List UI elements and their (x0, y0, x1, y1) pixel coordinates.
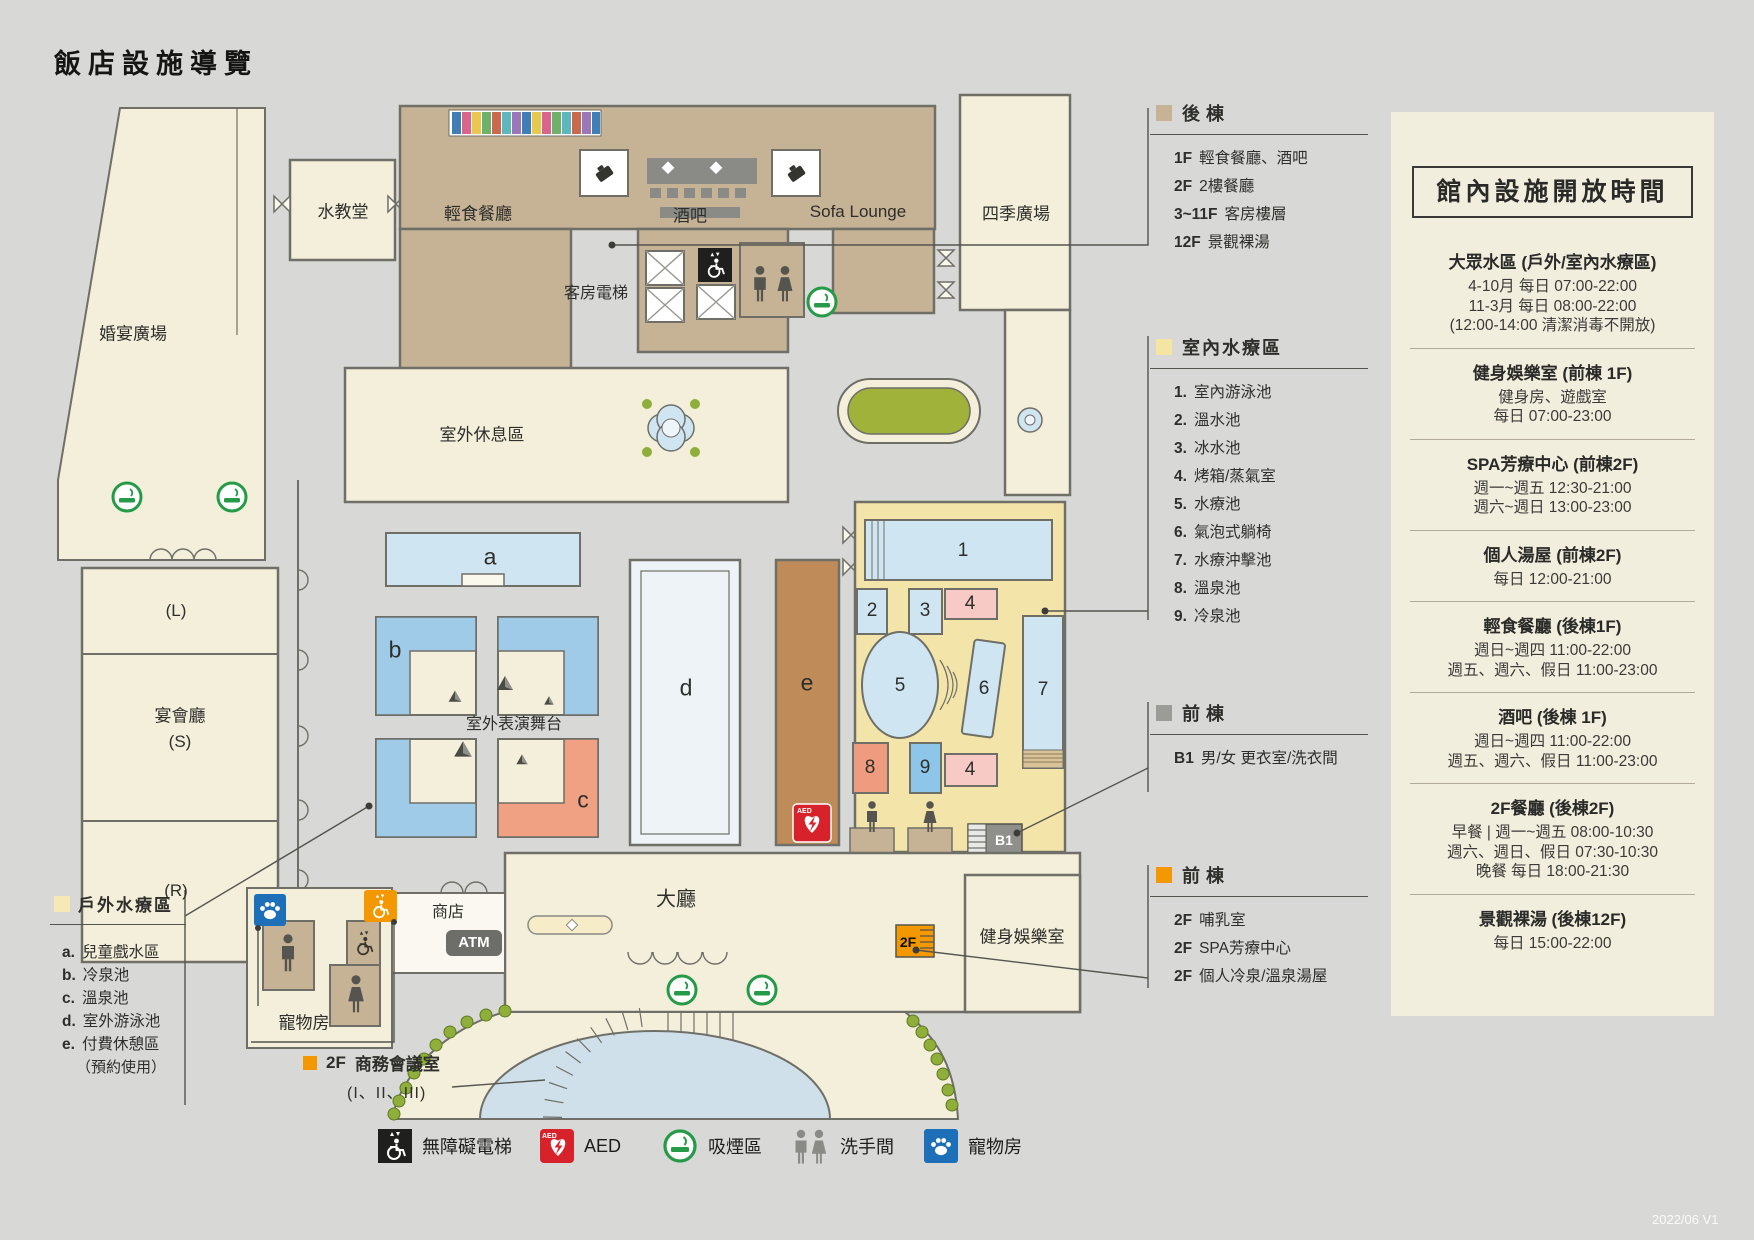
legend-item: c.溫泉池 (62, 987, 186, 1010)
aed-icon: AED (540, 1129, 574, 1163)
legend-front-b1: 前棟 B1男/女 更衣室/洗衣間 (1150, 700, 1368, 773)
legend-item: 2F個人冷泉/溫泉湯屋 (1174, 963, 1368, 991)
legend-outdoor-header: 戶外水療區 (50, 891, 186, 925)
pool-c-label: c (577, 787, 589, 814)
legend-item: 1.室內游泳池 (1174, 379, 1368, 407)
legend-restroom: 洗手間 (790, 1128, 894, 1164)
legend-outdoor-title: 戶外水療區 (78, 891, 173, 916)
legend-item: 9.冷泉池 (1174, 603, 1368, 631)
smoking-area-icon (113, 483, 141, 511)
indoor-spa-color-swatch (1156, 339, 1172, 355)
legend-item: 5.水療池 (1174, 491, 1368, 519)
legend-meeting-room: 2F 商務會議室 (I、II、III) (303, 1050, 440, 1103)
wedding-plaza-label: 婚宴廣場 (99, 320, 167, 345)
section-line: 週日~週四 11:00-22:00 (1391, 641, 1714, 661)
legend-front-2f-title: 前棟 (1182, 862, 1230, 888)
divider (1410, 894, 1695, 895)
section-heading: 健身娛樂室 (前棟 1F) (1391, 363, 1714, 385)
legend-item: 2FSPA芳療中心 (1174, 935, 1368, 963)
meeting-floor: 2F (326, 1053, 346, 1073)
pool-9-label: 9 (920, 757, 931, 779)
legend-item: 8.溫泉池 (1174, 575, 1368, 603)
outdoor-rest-label: 室外休息區 (440, 421, 525, 446)
legend-aed: AED AED (540, 1128, 621, 1164)
icon-label: 洗手間 (840, 1133, 894, 1159)
legend-back-title: 後棟 (1182, 100, 1230, 126)
version-text: 2022/06 V1 (1652, 1212, 1719, 1227)
pet-room-icon (924, 1129, 958, 1163)
front-gray-color-swatch (1156, 705, 1172, 721)
pool-6-label: 6 (979, 678, 990, 700)
svg-text:AED: AED (797, 808, 812, 815)
hotel-facility-map-page: { "title": "飯店設施導覽", "version": "2022/06… (0, 0, 1754, 1240)
legend-indoor-title: 室內水療區 (1182, 334, 1282, 360)
legend-item: b.冷泉池 (62, 964, 186, 987)
hours-section-rooftop-bath: 景觀裸湯 (後棟12F) 每日 15:00-22:00 (1391, 907, 1714, 954)
pool-8-label: 8 (865, 757, 876, 779)
accessible-elevator-icon (378, 1129, 412, 1163)
light-cafe-label: 輕食餐廳 (444, 200, 512, 225)
section-line: 週日~週四 11:00-22:00 (1391, 732, 1714, 752)
legend-indoor-spa: 室內水療區 1.室內游泳池 2.溫水池 3.冰水池 4.烤箱/蒸氣室 5.水療池… (1150, 334, 1368, 631)
area-e (776, 560, 839, 845)
hours-section-public-pools: 大眾水區 (戶外/室內水療區) 4-10月 每日 07:00-22:00 11-… (1391, 250, 1714, 336)
section-line: 早餐 | 週一~週五 08:00-10:30 (1391, 823, 1714, 843)
legend-front-b1-header: 前棟 (1150, 700, 1368, 735)
legend-back-header: 後棟 (1150, 100, 1368, 135)
hours-section-cafe: 輕食餐廳 (後棟1F) 週日~週四 11:00-22:00 週五、週六、假日 1… (1391, 614, 1714, 680)
hours-section-spa: SPA芳療中心 (前棟2F) 週一~週五 12:30-21:00 週六~週日 1… (1391, 452, 1714, 518)
hours-section-2f-restaurant: 2F餐廳 (後棟2F) 早餐 | 週一~週五 08:00-10:30 週六、週日… (1391, 796, 1714, 882)
icon-label: 寵物房 (968, 1133, 1022, 1159)
hours-section-bar: 酒吧 (後棟 1F) 週日~週四 11:00-22:00 週五、週六、假日 11… (1391, 705, 1714, 771)
hall-s-label: (S) (169, 732, 192, 752)
legend-item: a.兒童戲水區 (62, 941, 186, 964)
sofa-lounge-label: Sofa Lounge (810, 202, 906, 222)
shop-label: 商店 (432, 898, 464, 922)
pool-4-bottom-label: 4 (965, 759, 976, 781)
f2-marker-label: 2F (900, 934, 916, 950)
pool-a-label: a (484, 544, 497, 571)
back-building (400, 106, 935, 369)
hours-panel-title: 館內設施開放時間 (1412, 166, 1693, 218)
smoking-area-icon (808, 288, 836, 316)
section-line: 週一~週五 12:30-21:00 (1391, 479, 1714, 499)
svg-text:AED: AED (542, 1133, 557, 1140)
hall-l-label: (L) (166, 601, 187, 621)
section-heading: 2F餐廳 (後棟2F) (1391, 798, 1714, 820)
smoking-area-icon (668, 976, 696, 1004)
legend-accessible-elevator: 無障礙電梯 (378, 1128, 512, 1164)
legend-note: （預約使用） (62, 1056, 186, 1079)
fitness-label: 健身娛樂室 (980, 923, 1065, 948)
icon-label: 吸煙區 (708, 1133, 762, 1159)
legend-item: 4.烤箱/蒸氣室 (1174, 463, 1368, 491)
hours-section-fitness: 健身娛樂室 (前棟 1F) 健身房、遊戲室 每日 07:00-23:00 (1391, 361, 1714, 427)
aed-icon: AED (793, 804, 831, 842)
legend-item: 1F輕食餐廳、酒吧 (1174, 145, 1368, 173)
four-seasons-label: 四季廣場 (982, 200, 1050, 225)
buffet-counter (449, 110, 601, 136)
back-restroom (740, 243, 804, 317)
meeting-sub: (I、II、III) (347, 1079, 440, 1103)
legend-smoking-area: 吸煙區 (662, 1128, 762, 1164)
legend-indoor-header: 室內水療區 (1150, 334, 1368, 369)
legend-pet-room: 寵物房 (924, 1128, 1022, 1164)
divider (1410, 439, 1695, 440)
legend-item: 3.冰水池 (1174, 435, 1368, 463)
legend-item: B1男/女 更衣室/洗衣間 (1174, 745, 1368, 773)
water-chapel-label: 水教堂 (318, 198, 369, 223)
accessible-elevator-icon (698, 248, 732, 282)
service-room-2 (772, 150, 820, 196)
outdoor-spa-color-swatch (54, 896, 70, 912)
legend-item: 2F2樓餐廳 (1174, 173, 1368, 201)
pool-1-label: 1 (958, 540, 969, 562)
outdoor-rest-area (345, 368, 788, 502)
hours-panel: 館內設施開放時間 大眾水區 (戶外/室內水療區) 4-10月 每日 07:00-… (1391, 112, 1714, 1016)
section-heading: 大眾水區 (戶外/室內水療區) (1391, 252, 1714, 274)
legend-item: e.付費休憩區 (62, 1033, 186, 1056)
pool-b-label: b (389, 637, 402, 664)
legend-front-2f-header: 前棟 (1150, 862, 1368, 897)
divider (1410, 530, 1695, 531)
pool-5-label: 5 (895, 675, 906, 697)
service-room (580, 150, 628, 196)
legend-item: 6.氣泡式躺椅 (1174, 519, 1368, 547)
divider (1410, 348, 1695, 349)
meeting-text: 商務會議室 (355, 1050, 440, 1075)
section-line: (12:00-14:00 清潔消毒不開放) (1391, 316, 1714, 336)
section-line: 週六、週日、假日 07:30-10:30 (1391, 843, 1714, 863)
legend-item: 7.水療沖擊池 (1174, 547, 1368, 575)
section-line: 每日 15:00-22:00 (1391, 934, 1714, 954)
section-line: 每日 07:00-23:00 (1391, 407, 1714, 427)
icon-label: AED (584, 1136, 621, 1157)
section-line: 週五、週六、假日 11:00-23:00 (1391, 752, 1714, 772)
lobby-label: 大廳 (656, 883, 696, 912)
pet-room-label: 寵物房 (279, 1009, 330, 1034)
legend-item: 2.溫水池 (1174, 407, 1368, 435)
room-elevator-label: 客房電梯 (564, 279, 628, 303)
smoking-area-icon (748, 976, 776, 1004)
section-line: 11-3月 每日 08:00-22:00 (1391, 297, 1714, 317)
pool-7-label: 7 (1038, 679, 1049, 701)
section-heading: 個人湯屋 (前棟2F) (1391, 545, 1714, 567)
driveway (388, 1005, 958, 1120)
legend-front-2f: 前棟 2F哺乳室 2FSPA芳療中心 2F個人冷泉/溫泉湯屋 (1150, 862, 1368, 991)
section-line: 健身房、遊戲室 (1391, 388, 1714, 408)
pool-2-label: 2 (867, 600, 878, 622)
section-line: 晚餐 每日 18:00-21:30 (1391, 862, 1714, 882)
smoking-area-icon (662, 1128, 698, 1164)
smoking-area-icon (218, 483, 246, 511)
section-heading: 輕食餐廳 (後棟1F) (1391, 616, 1714, 638)
atm-label: ATM (446, 930, 502, 956)
section-line: 週五、週六、假日 11:00-23:00 (1391, 661, 1714, 681)
pool-d-label: d (680, 675, 693, 702)
pet-room-icon (254, 894, 286, 926)
divider (1410, 601, 1695, 602)
section-heading: SPA芳療中心 (前棟2F) (1391, 454, 1714, 476)
back-building-color-swatch (1156, 105, 1172, 121)
b1-marker-label: B1 (995, 832, 1013, 848)
legend-outdoor-spa: 戶外水療區 a.兒童戲水區 b.冷泉池 c.溫泉池 d.室外游泳池 e.付費休憩… (50, 891, 186, 1079)
accessible-elevator-orange-icon (364, 890, 397, 922)
small-flower-pool (1018, 408, 1042, 432)
divider (1410, 692, 1695, 693)
bar-label: 酒吧 (673, 202, 707, 227)
pool-d (630, 560, 740, 845)
green-pool (838, 379, 980, 443)
pool-3-label: 3 (920, 600, 931, 622)
stage-label: 室外表演舞台 (466, 710, 562, 734)
pool-e-label: e (801, 670, 814, 697)
banquet-hall-label: 宴會廳 (155, 702, 206, 727)
meeting-color-swatch (303, 1056, 317, 1070)
pool-4-top-label: 4 (965, 593, 976, 615)
icon-label: 無障礙電梯 (422, 1133, 512, 1159)
reception-counter (528, 916, 612, 934)
pool-a-ledge (462, 574, 504, 586)
section-line: 4-10月 每日 07:00-22:00 (1391, 277, 1714, 297)
divider (1410, 783, 1695, 784)
section-heading: 景觀裸湯 (後棟12F) (1391, 909, 1714, 931)
restroom-icon (790, 1128, 830, 1164)
section-line: 週六~週日 13:00-23:00 (1391, 498, 1714, 518)
legend-back-building: 後棟 1F輕食餐廳、酒吧 2F2樓餐廳 3~11F客房樓層 12F景觀裸湯 (1150, 100, 1368, 257)
section-heading: 酒吧 (後棟 1F) (1391, 707, 1714, 729)
legend-item: d.室外游泳池 (62, 1010, 186, 1033)
legend-item: 2F哺乳室 (1174, 907, 1368, 935)
section-line: 每日 12:00-21:00 (1391, 570, 1714, 590)
legend-item: 3~11F客房樓層 (1174, 201, 1368, 229)
front-orange-color-swatch (1156, 867, 1172, 883)
hours-section-private-bath: 個人湯屋 (前棟2F) 每日 12:00-21:00 (1391, 543, 1714, 590)
legend-item: 12F景觀裸湯 (1174, 229, 1368, 257)
legend-front-b1-title: 前棟 (1182, 700, 1230, 726)
